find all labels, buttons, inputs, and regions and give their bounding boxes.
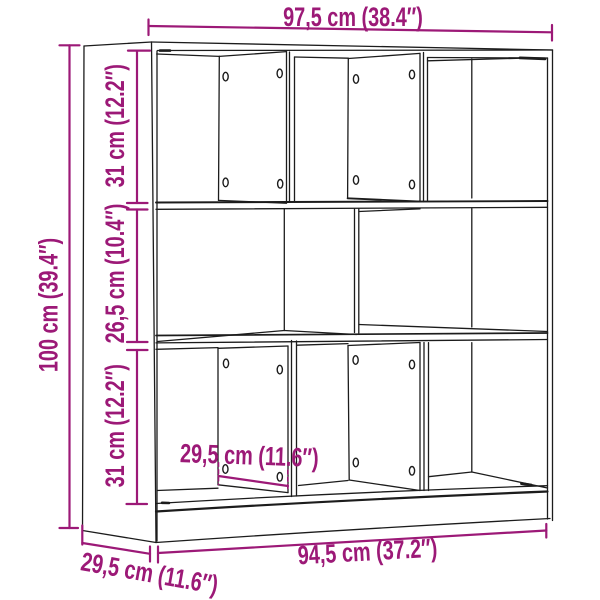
svg-text:26,5 cm (10.4″): 26,5 cm (10.4″) — [100, 204, 129, 344]
svg-text:100 cm (39.4″): 100 cm (39.4″) — [34, 238, 63, 372]
svg-text:29,5 cm (11.6″): 29,5 cm (11.6″) — [179, 438, 319, 472]
svg-text:31 cm (12.2″): 31 cm (12.2″) — [100, 64, 129, 187]
svg-text:31 cm (12.2″): 31 cm (12.2″) — [100, 364, 129, 487]
svg-text:97,5 cm (38.4″): 97,5 cm (38.4″) — [283, 2, 423, 31]
